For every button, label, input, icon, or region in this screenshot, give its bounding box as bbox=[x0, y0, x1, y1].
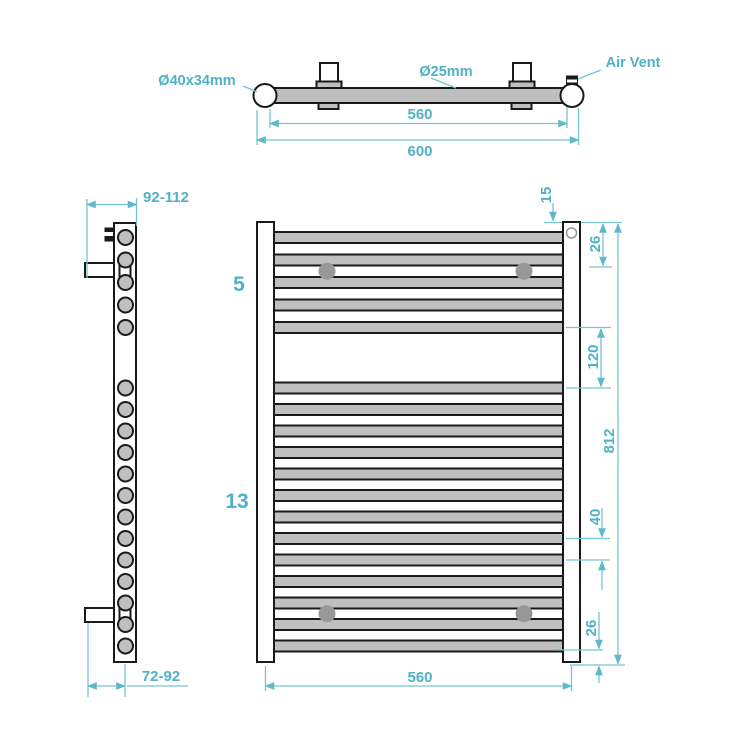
tube-cross-section bbox=[118, 596, 133, 611]
svg-text:26: 26 bbox=[587, 236, 604, 253]
svg-text:560: 560 bbox=[407, 669, 432, 686]
front-right-rail bbox=[563, 222, 580, 662]
tube-cross-section bbox=[118, 298, 133, 313]
tube-cross-section bbox=[118, 253, 133, 268]
tube-cross-section bbox=[118, 402, 133, 417]
wall-bracket-dot bbox=[319, 263, 336, 280]
drawing-canvas: Ø40x34mm Ø25mm Air Vent 560 600 bbox=[0, 0, 750, 750]
wall-bracket-dot bbox=[516, 263, 533, 280]
tube-cross-section bbox=[118, 531, 133, 546]
tube-cross-section bbox=[118, 488, 133, 503]
tube-cross-section bbox=[118, 230, 133, 245]
svg-text:560: 560 bbox=[407, 106, 432, 123]
tube-cross-section bbox=[118, 320, 133, 335]
dimension-top-bracket-offset: 26 bbox=[587, 224, 612, 267]
towel-bar bbox=[274, 490, 564, 501]
air-vent-front bbox=[567, 228, 577, 238]
tube-cross-section bbox=[118, 424, 133, 439]
tube-cross-section bbox=[118, 639, 133, 654]
svg-text:15: 15 bbox=[538, 187, 555, 204]
towel-bar bbox=[274, 322, 564, 333]
towel-bar bbox=[274, 512, 564, 523]
top-bar-count-label: 5 bbox=[233, 273, 245, 296]
side-view: 92-112 72-92 bbox=[85, 189, 189, 697]
towel-bar bbox=[274, 641, 564, 652]
towel-bar bbox=[274, 383, 564, 394]
front-left-rail bbox=[257, 222, 274, 662]
front-towel-bars bbox=[274, 232, 564, 652]
left-end-cap bbox=[254, 84, 277, 107]
towel-bar bbox=[274, 447, 564, 458]
tube-cross-section bbox=[118, 553, 133, 568]
tube-cross-section bbox=[118, 275, 133, 290]
cap-size-label: Ø40x34mm bbox=[158, 73, 235, 89]
svg-text:600: 600 bbox=[407, 143, 432, 160]
towel-bar bbox=[274, 533, 564, 544]
towel-bar bbox=[274, 232, 564, 243]
svg-text:26: 26 bbox=[583, 620, 600, 637]
svg-text:72-92: 72-92 bbox=[142, 668, 180, 685]
towel-bar bbox=[274, 576, 564, 587]
towel-bar bbox=[274, 469, 564, 480]
tube-cross-section bbox=[118, 574, 133, 589]
svg-text:40: 40 bbox=[587, 509, 604, 526]
wall-bracket-dot bbox=[319, 605, 336, 622]
leader-line bbox=[578, 70, 601, 79]
svg-text:812: 812 bbox=[601, 428, 618, 453]
front-view: 5 13 15 26 120 812 bbox=[225, 187, 625, 691]
svg-text:120: 120 bbox=[585, 344, 602, 369]
dimension-bottom-projection: 72-92 bbox=[88, 623, 188, 697]
bottom-bar-count-label: 13 bbox=[225, 490, 248, 513]
tube-cross-section bbox=[118, 467, 133, 482]
right-end-cap bbox=[561, 84, 584, 107]
dimension-rail-centres: 560 bbox=[266, 666, 572, 691]
plan-bracket-tab bbox=[319, 103, 339, 109]
tube-cross-section bbox=[118, 445, 133, 460]
plan-bracket-tab bbox=[512, 103, 532, 109]
tube-cross-section bbox=[118, 381, 133, 396]
tube-cross-section bbox=[118, 510, 133, 525]
towel-bar bbox=[274, 426, 564, 437]
wall-bracket-dot bbox=[516, 605, 533, 622]
tube-cross-section bbox=[118, 617, 133, 632]
dimension-rail-top-offset: 15 bbox=[538, 187, 555, 221]
air-vent-label: Air Vent bbox=[606, 55, 661, 71]
dimension-overall-height: 812 bbox=[584, 224, 625, 665]
towel-bar bbox=[274, 555, 564, 566]
towel-bar bbox=[274, 404, 564, 415]
radiator-technical-drawing: Ø40x34mm Ø25mm Air Vent 560 600 bbox=[0, 0, 750, 750]
svg-text:92-112: 92-112 bbox=[143, 189, 189, 206]
towel-bar bbox=[274, 300, 564, 311]
plan-top-tube bbox=[268, 88, 572, 103]
top-view: Ø40x34mm Ø25mm Air Vent 560 600 bbox=[158, 55, 660, 160]
tube-diameter-label: Ø25mm bbox=[419, 64, 472, 80]
